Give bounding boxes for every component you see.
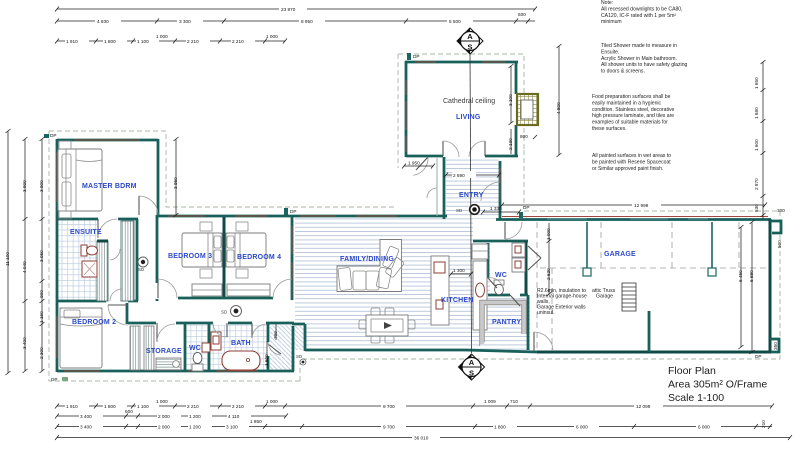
svg-text:A: A — [469, 358, 475, 367]
svg-text:8 950: 8 950 — [301, 19, 313, 24]
svg-text:2 300: 2 300 — [39, 347, 44, 359]
svg-text:2 690: 2 690 — [453, 173, 465, 178]
svg-text:minimum: minimum — [601, 19, 622, 25]
svg-text:SD: SD — [456, 208, 463, 213]
svg-text:BEDROOM 3: BEDROOM 3 — [168, 253, 212, 260]
svg-text:1 000: 1 000 — [156, 34, 168, 39]
svg-text:WC: WC — [495, 272, 507, 279]
svg-text:1 160: 1 160 — [39, 311, 44, 323]
svg-text:12 998: 12 998 — [634, 203, 649, 208]
svg-text:2 210: 2 210 — [187, 404, 199, 409]
svg-text:FAMILY/DINING: FAMILY/DINING — [340, 256, 394, 263]
svg-text:3 050: 3 050 — [39, 250, 44, 262]
svg-text:DP: DP — [51, 377, 58, 382]
svg-text:210: 210 — [761, 420, 766, 428]
svg-text:1 800: 1 800 — [104, 39, 116, 44]
svg-text:1 910: 1 910 — [66, 404, 78, 409]
svg-text:Floor Plan: Floor Plan — [668, 365, 716, 377]
svg-text:to doors & screens.: to doors & screens. — [601, 69, 645, 75]
svg-text:4 040: 4 040 — [22, 261, 27, 273]
svg-text:1 850: 1 850 — [250, 419, 262, 424]
svg-text:SD: SD — [138, 267, 145, 272]
svg-text:600: 600 — [518, 12, 526, 17]
svg-text:1 100: 1 100 — [137, 39, 149, 44]
svg-text:1 800: 1 800 — [104, 404, 116, 409]
svg-text:6 680: 6 680 — [749, 270, 754, 282]
svg-text:6 000: 6 000 — [698, 425, 710, 430]
svg-text:6 450: 6 450 — [738, 270, 743, 282]
svg-text:Ensuite.: Ensuite. — [601, 49, 619, 55]
svg-text:All recessed downlights to be: All recessed downlights to be CA80, — [601, 6, 683, 12]
svg-text:9 700: 9 700 — [383, 404, 395, 409]
svg-text:1 650: 1 650 — [754, 77, 759, 89]
svg-text:700: 700 — [273, 331, 278, 339]
svg-text:2 130: 2 130 — [508, 138, 513, 150]
svg-text:KITCHEN: KITCHEN — [441, 297, 474, 304]
svg-text:Acrylic Shower in Main bathroo: Acrylic Shower in Main bathroom. — [601, 56, 677, 62]
svg-text:Scale 1-100: Scale 1-100 — [668, 392, 724, 404]
svg-text:5 500: 5 500 — [449, 19, 461, 24]
svg-text:STORAGE: STORAGE — [146, 348, 182, 355]
svg-text:3 300: 3 300 — [179, 19, 191, 24]
svg-text:2 870: 2 870 — [754, 178, 759, 190]
svg-text:2 210: 2 210 — [232, 404, 244, 409]
svg-text:DP: DP — [50, 133, 57, 138]
svg-text:1 910: 1 910 — [66, 39, 78, 44]
svg-text:9 700: 9 700 — [383, 425, 395, 430]
svg-text:2 000: 2 000 — [158, 425, 170, 430]
svg-text:3 950: 3 950 — [173, 177, 178, 189]
svg-text:500: 500 — [777, 240, 782, 248]
svg-text:WC: WC — [189, 345, 201, 352]
svg-text:PANTRY: PANTRY — [492, 319, 521, 326]
svg-text:S: S — [469, 369, 474, 378]
svg-text:Area 305m² O/Frame: Area 305m² O/Frame — [668, 379, 767, 391]
svg-text:710: 710 — [510, 399, 518, 404]
svg-text:DP: DP — [755, 354, 762, 359]
svg-text:600: 600 — [125, 409, 133, 414]
svg-text:350: 350 — [773, 342, 778, 350]
svg-text:6 000: 6 000 — [576, 425, 588, 430]
svg-text:4 800: 4 800 — [556, 102, 561, 114]
svg-text:condition. Stainless steel, de: condition. Stainless steel, decorative — [592, 107, 675, 113]
svg-text:3 400: 3 400 — [80, 425, 92, 430]
svg-text:4 110: 4 110 — [228, 414, 240, 419]
svg-text:3 900: 3 900 — [39, 180, 44, 192]
svg-text:GARAGE: GARAGE — [604, 251, 636, 258]
svg-text:2 620: 2 620 — [546, 268, 551, 280]
svg-text:800: 800 — [520, 134, 528, 139]
svg-text:1 009: 1 009 — [484, 399, 496, 404]
svg-text:900: 900 — [39, 290, 44, 298]
svg-text:LIVING: LIVING — [456, 114, 481, 121]
svg-text:12 099: 12 099 — [636, 404, 651, 409]
svg-text:Garage: Garage — [596, 294, 613, 300]
svg-text:1 000: 1 000 — [266, 399, 278, 404]
svg-text:Cathedral ceiling: Cathedral ceiling — [443, 98, 495, 105]
svg-text:3 900: 3 900 — [22, 180, 27, 192]
svg-text:2 210: 2 210 — [232, 39, 244, 44]
svg-text:1 200: 1 200 — [189, 414, 201, 419]
svg-text:these surfaces.: these surfaces. — [592, 126, 627, 132]
svg-text:BEDROOM 4: BEDROOM 4 — [237, 254, 281, 261]
svg-text:1 680: 1 680 — [754, 107, 759, 119]
svg-text:1 000: 1 000 — [266, 34, 278, 39]
svg-text:1 600: 1 600 — [264, 354, 269, 366]
svg-text:examples of suitable materials: examples of suitable materials for — [592, 120, 668, 126]
svg-text:All shower units to have safet: All shower units to have safety glazing — [601, 62, 688, 68]
svg-text:1 300: 1 300 — [453, 268, 465, 273]
svg-text:SD: SD — [296, 354, 303, 359]
svg-text:Tiled Shower made to measure i: Tiled Shower made to measure in — [601, 43, 677, 49]
svg-text:be painted with Resene Spaceco: be painted with Resene Spacecoat — [592, 159, 671, 165]
svg-text:36 010: 36 010 — [414, 436, 429, 441]
svg-text:BATH: BATH — [231, 340, 251, 347]
svg-text:DP: DP — [290, 209, 297, 214]
svg-text:DP: DP — [413, 54, 420, 59]
svg-text:Food preparation surfaces shal: Food preparation surfaces shall be — [592, 94, 671, 100]
svg-text:CA120, IC-F rated with 1 per 5: CA120, IC-F rated with 1 per 5m² — [601, 13, 676, 19]
svg-text:ENSUITE: ENSUITE — [70, 229, 102, 236]
svg-text:1 950: 1 950 — [408, 161, 420, 166]
svg-text:2 000: 2 000 — [158, 414, 170, 419]
svg-text:4 930: 4 930 — [97, 19, 109, 24]
svg-text:300: 300 — [777, 208, 785, 213]
svg-text:3 100: 3 100 — [226, 425, 238, 430]
svg-text:or Similar approved paint fini: or Similar approved paint finish. — [592, 166, 663, 172]
svg-text:high pressure laminate, and ti: high pressure laminate, and tiles are — [592, 113, 674, 119]
svg-text:3 100: 3 100 — [508, 94, 513, 106]
svg-text:1 000: 1 000 — [156, 399, 168, 404]
svg-text:Note:: Note: — [601, 0, 613, 6]
svg-text:SD: SD — [221, 310, 228, 315]
svg-text:1 000: 1 000 — [546, 228, 551, 240]
svg-text:uninsul.: uninsul. — [537, 310, 555, 316]
svg-text:2 210: 2 210 — [187, 39, 199, 44]
svg-text:S: S — [467, 43, 472, 52]
svg-text:1 100: 1 100 — [137, 404, 149, 409]
svg-text:All painted surfaces in wet ar: All painted surfaces in wet areas to — [592, 153, 671, 159]
svg-text:1 800: 1 800 — [494, 425, 506, 430]
svg-text:easily maintained in a hygieni: easily maintained in a hygienic — [592, 100, 662, 106]
svg-text:3 400: 3 400 — [22, 337, 27, 349]
svg-text:MASTER BDRM: MASTER BDRM — [82, 183, 137, 190]
svg-text:A: A — [467, 32, 473, 41]
svg-text:1 600: 1 600 — [754, 139, 759, 151]
svg-text:BEDROOM 2: BEDROOM 2 — [72, 319, 116, 326]
svg-text:ENTRY: ENTRY — [459, 192, 484, 199]
svg-text:DP: DP — [523, 205, 530, 210]
svg-text:11 100: 11 100 — [5, 252, 10, 266]
svg-text:23 870: 23 870 — [281, 7, 296, 12]
svg-text:1 200: 1 200 — [189, 425, 201, 430]
svg-text:530: 530 — [754, 204, 759, 212]
svg-text:3 400: 3 400 — [80, 414, 92, 419]
